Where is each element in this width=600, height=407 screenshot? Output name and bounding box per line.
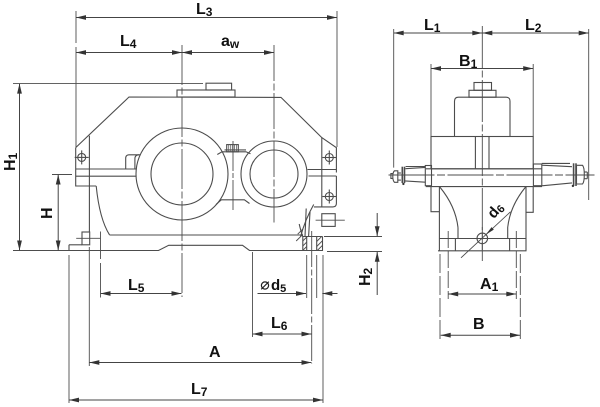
svg-text:L6: L6	[271, 315, 288, 333]
svg-text:H1: H1	[2, 152, 20, 171]
svg-text:L2: L2	[525, 17, 542, 35]
svg-text:B1: B1	[459, 53, 478, 71]
svg-text:L7: L7	[191, 381, 208, 399]
svg-text:A1: A1	[480, 276, 499, 294]
svg-text:H2: H2	[357, 267, 375, 286]
svg-text:L3: L3	[196, 1, 213, 19]
svg-text:L4: L4	[120, 33, 137, 51]
svg-text:H: H	[39, 207, 56, 219]
svg-text:d5: d5	[271, 277, 286, 295]
svg-text:aw: aw	[221, 33, 240, 51]
svg-text:A: A	[209, 344, 221, 361]
svg-text:L5: L5	[128, 277, 145, 295]
svg-text:L1: L1	[424, 17, 441, 35]
svg-text:B: B	[473, 316, 485, 333]
svg-text:d6: d6	[484, 199, 508, 222]
